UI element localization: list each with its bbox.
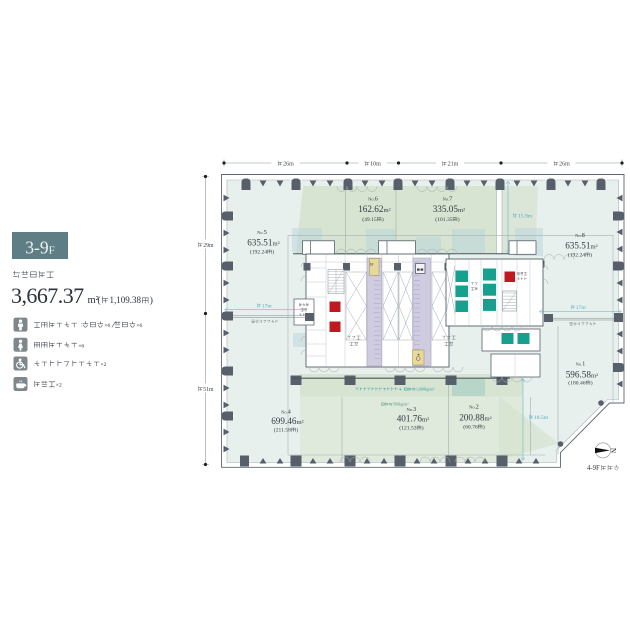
svg-text:No.1: No.1 [576,361,586,368]
svg-text:): ) [422,425,424,432]
svg-text:×6: ×6 [104,323,110,329]
svg-text:No.7: No.7 [443,196,453,203]
svg-text:26m: 26m [283,162,294,168]
svg-text:60.76: 60.76 [465,425,478,431]
svg-text:192.24: 192.24 [570,253,586,259]
svg-text:17m: 17m [576,305,587,311]
svg-text:21m: 21m [448,162,459,168]
svg-text:211.58: 211.58 [276,428,291,434]
svg-text:51m: 51m [203,387,214,393]
svg-text:×6: ×6 [136,323,142,329]
svg-text:×6: ×6 [78,343,84,349]
svg-text:): ) [296,427,298,434]
svg-text:17m: 17m [262,304,273,310]
svg-text:15.9m: 15.9m [518,214,533,220]
svg-text:No.3: No.3 [407,406,417,413]
svg-text:3,667.37: 3,667.37 [11,283,84,308]
svg-text:): ) [150,295,153,306]
svg-text:29m: 29m [203,243,214,249]
svg-text:): ) [458,216,460,223]
svg-text:26m: 26m [559,162,570,168]
svg-text:No.4: No.4 [281,409,291,416]
svg-text:500kg/m²: 500kg/m² [393,402,409,407]
svg-text:4-9F: 4-9F [587,465,600,472]
svg-text:×2: ×2 [56,383,62,389]
svg-text:49.15: 49.15 [364,217,377,223]
svg-text:): ) [591,380,593,387]
svg-text:No.2: No.2 [469,404,479,411]
svg-text:10m: 10m [370,162,381,168]
svg-text:(: ( [98,295,101,306]
svg-text:121.53: 121.53 [401,426,417,432]
svg-text:×2: ×2 [101,362,107,368]
svg-text:No.8: No.8 [575,232,585,239]
svg-text:180.46: 180.46 [570,381,586,387]
svg-text:): ) [590,252,592,259]
svg-text:1,109.38: 1,109.38 [110,295,142,305]
svg-text:): ) [382,216,384,223]
svg-text:192.24: 192.24 [252,250,268,256]
svg-text:): ) [483,424,485,431]
svg-text:N: N [609,448,617,453]
svg-text:): ) [272,249,274,256]
svg-text:No.6: No.6 [368,196,378,203]
svg-text:18.5m: 18.5m [534,415,549,421]
svg-text:101.35: 101.35 [437,217,453,223]
svg-text:No.5: No.5 [257,229,267,236]
